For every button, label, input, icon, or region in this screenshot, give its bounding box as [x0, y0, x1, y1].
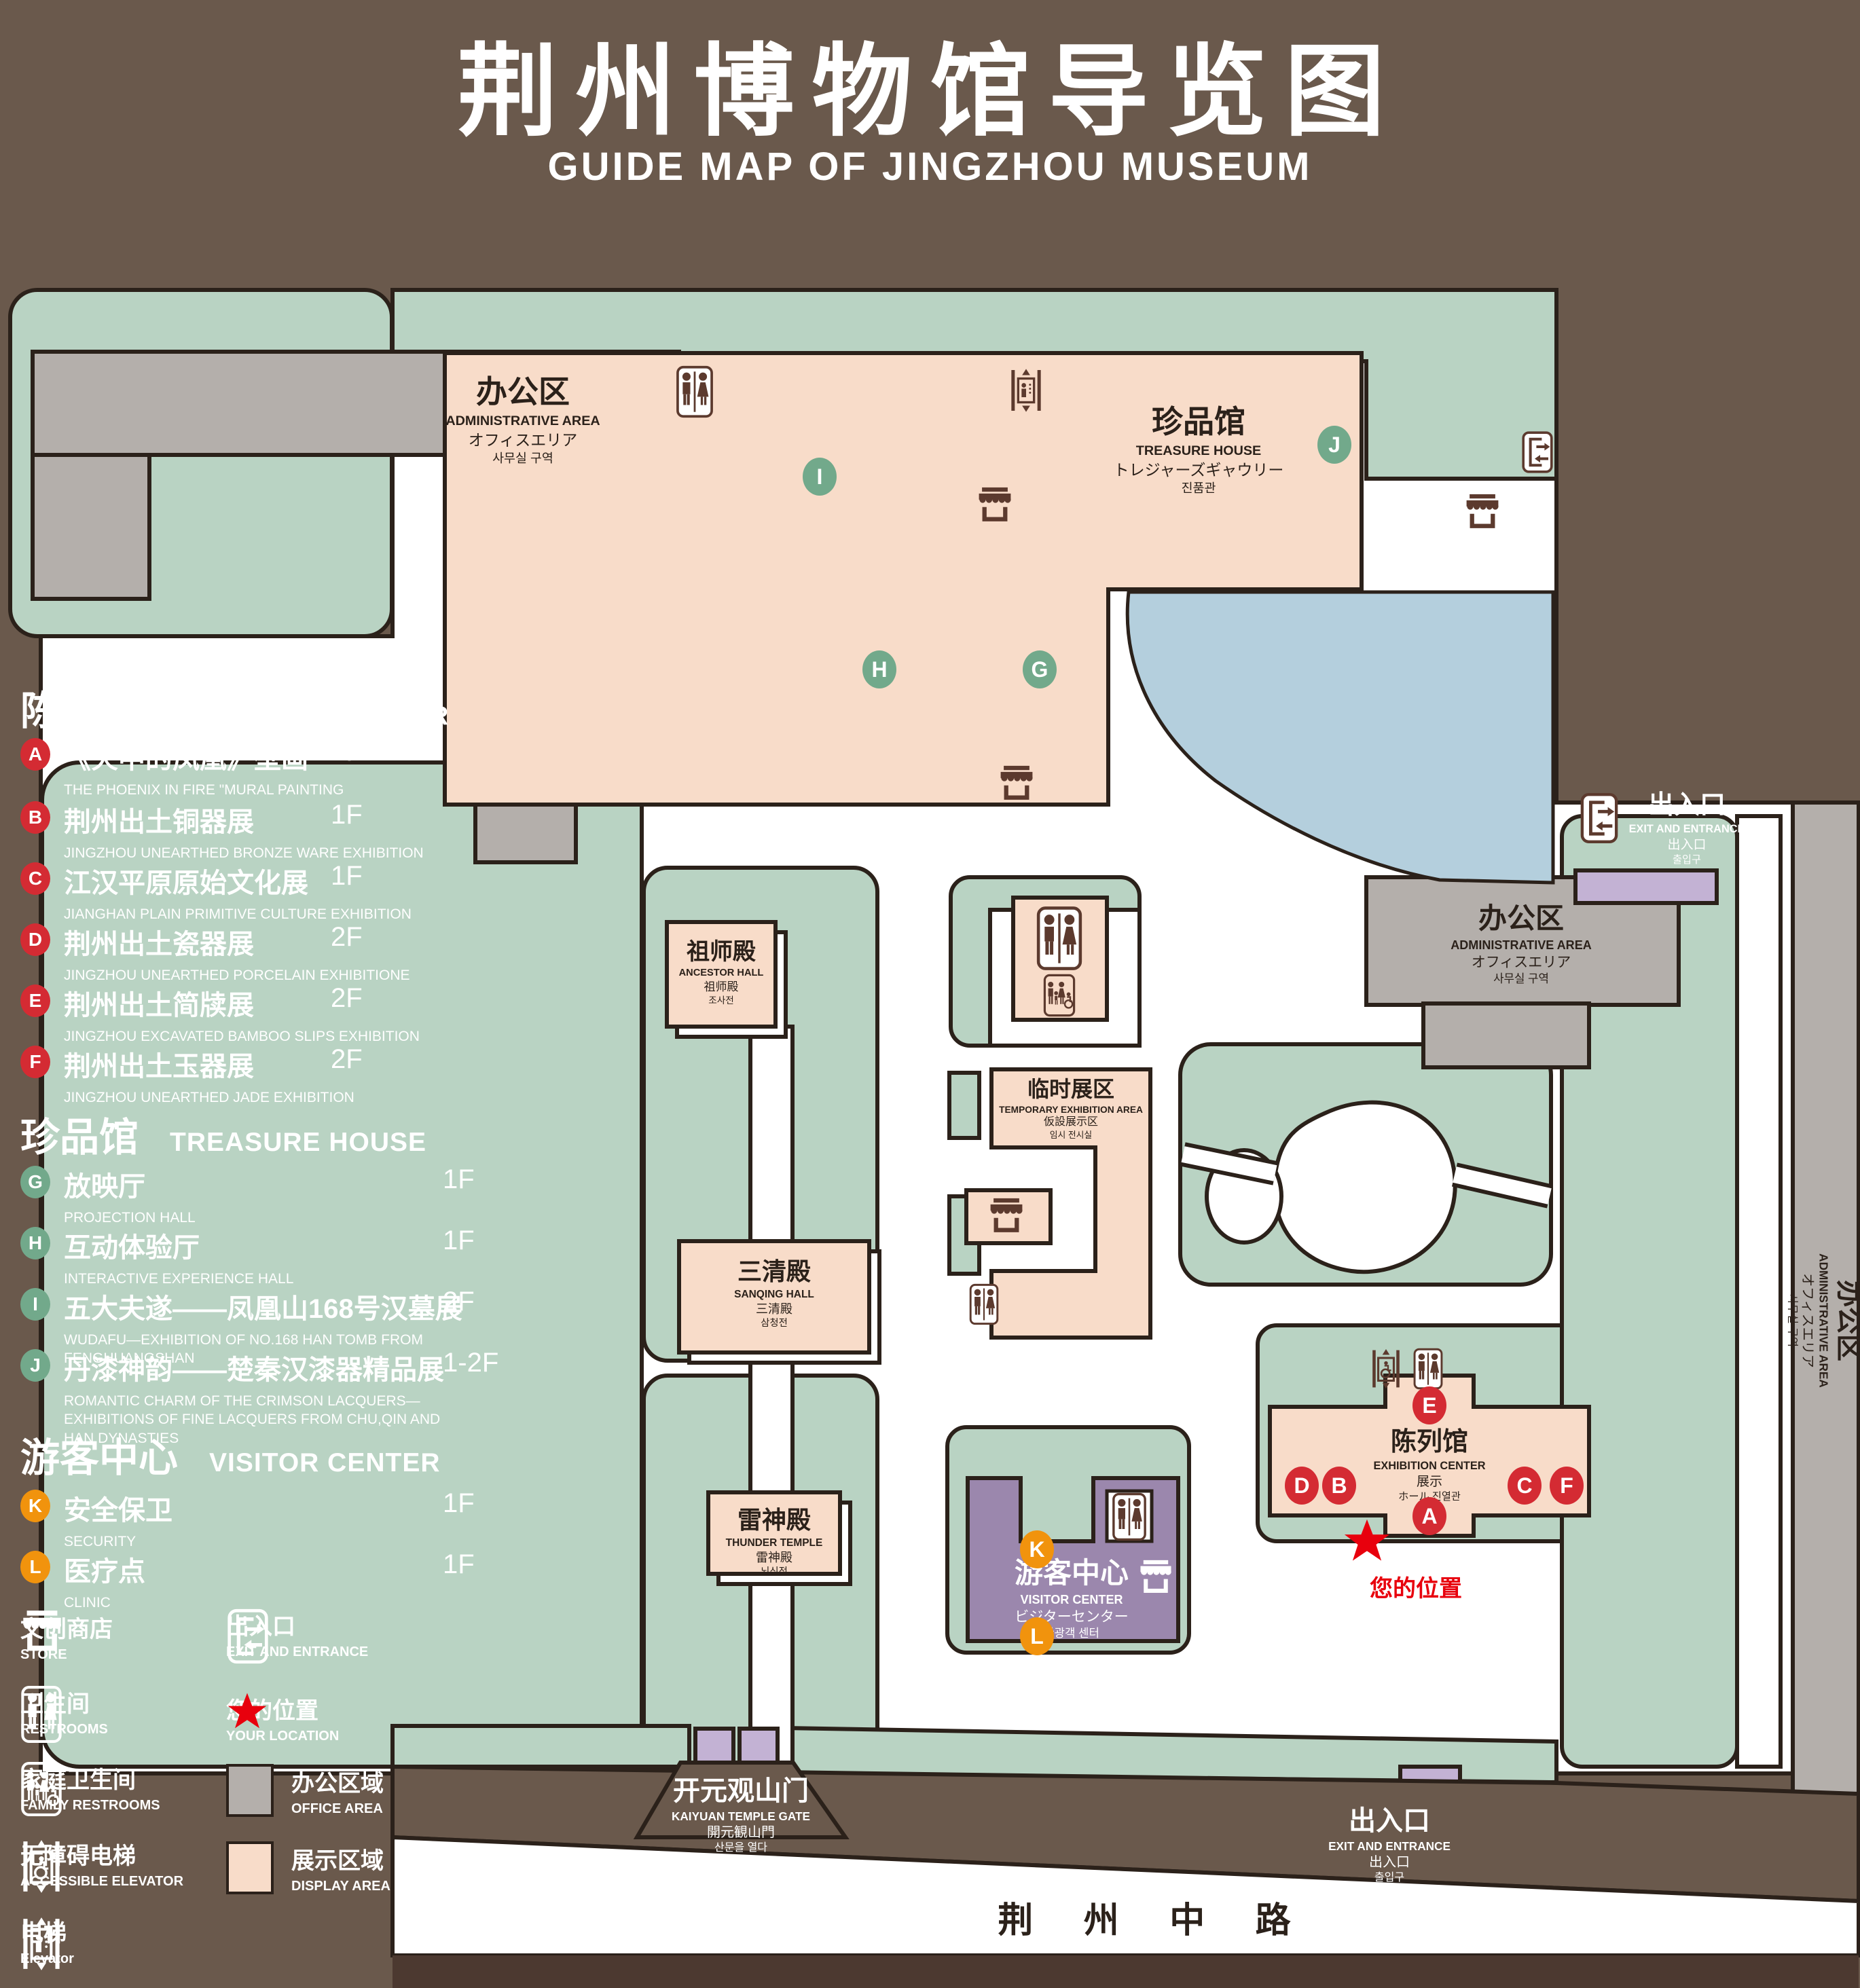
family-restroom-icon: [20, 1761, 62, 1817]
exit-icon: [226, 1608, 270, 1665]
label-admin-nw: 办公区ADMINISTRATIVE AREA オフィスエリア사무실 구역: [445, 372, 600, 466]
badge-k: K: [20, 1490, 50, 1522]
floor-label: 1F: [443, 1226, 475, 1256]
office-area-swatch: [226, 1764, 274, 1817]
floor-label: 1F: [331, 861, 363, 891]
map-badge-h: H: [862, 650, 896, 688]
map-badge-d: D: [1285, 1467, 1319, 1505]
label-kaiyuan-gate: 开元观山门KAIYUAN TEMPLE GATE 開元観山門산문을 열다: [672, 1773, 810, 1856]
badge-d: D: [20, 923, 50, 956]
map-badge-f: F: [1550, 1467, 1584, 1505]
badge-i: I: [20, 1288, 50, 1321]
floor-label: 1F: [443, 1488, 475, 1519]
legend-symbol-accessible-elevator: 无障碍电梯 ACCESSIBLE ELEVATOR: [20, 1837, 183, 1890]
restroom-icon: [970, 1285, 998, 1323]
label-exit-east: 出入口EXIT AND ENTRANCE 出入口출입구: [1629, 789, 1745, 867]
map-badge-e: E: [1412, 1386, 1446, 1424]
badge-g: G: [20, 1166, 50, 1198]
legend-symbol-store: 文创商店 STORE: [20, 1610, 113, 1663]
badge-l: L: [20, 1551, 50, 1583]
floor-label: 1F: [331, 800, 363, 830]
floor-label: 2F: [443, 1287, 475, 1317]
floor-label: 2F: [331, 1044, 363, 1075]
your-location-label: 您的位置: [1370, 1570, 1462, 1603]
map-badge-c: C: [1508, 1467, 1542, 1505]
legend-symbol-elevator: 电梯 Elevator: [20, 1915, 74, 1967]
legend-symbol-display-area: 展示区域 DISPLAY AREA: [226, 1841, 390, 1894]
legend-item-c: C 江汉平原原始文化展 JIANGHAN PLAIN PRIMITIVE CUL…: [20, 861, 523, 923]
legend-symbol-office-area: 办公区域 OFFICE AREA: [226, 1764, 384, 1817]
label-thunder-temple: 雷神殿THUNDER TEMPLE 雷神殿뇌신전: [726, 1505, 823, 1579]
label-admin-e: 办公区ADMINISTRATIVE AREA オフィスエリア사무실 구역: [1451, 900, 1592, 987]
badge-j: J: [20, 1349, 50, 1382]
label-treasure-house: 珍品馆TREASURE HOUSE トレジャーズギャウリー진품관: [1114, 402, 1284, 496]
location-star-icon: [226, 1692, 268, 1731]
exit-icon: [1523, 432, 1552, 472]
map-badge-b: B: [1322, 1467, 1356, 1505]
map-badge-g: G: [1023, 650, 1057, 688]
restroom-icon: [20, 1685, 62, 1744]
badge-f: F: [20, 1046, 50, 1078]
restroom-icon: [1038, 908, 1080, 968]
legend-symbol-family-restrooms: 家庭卫生间 FAMILY RESTROOMS: [20, 1761, 160, 1814]
badge-e: E: [20, 984, 50, 1017]
label-sanqing-hall: 三清殿SANQING HALL 三清殿삼청전: [734, 1256, 814, 1330]
legend-item-h: H 互动体验厅 INTERACTIVE EXPERIENCE HALL 1F: [20, 1226, 523, 1288]
legend-section-treasure-house: 珍品馆 TREASURE HOUSE: [20, 1105, 426, 1162]
badge-b: B: [20, 801, 50, 834]
guide-map-poster: 荆州博物馆导览图 GUIDE MAP OF JINGZHOU MUSEUM 陈列…: [0, 0, 1860, 1988]
floor-label: 2F: [331, 983, 363, 1014]
floor-label: 1-2F: [443, 1348, 498, 1378]
map-badge-l: L: [1020, 1617, 1054, 1655]
badge-h: H: [20, 1227, 50, 1259]
badge-a: A: [20, 738, 50, 771]
floor-label: 2F: [331, 922, 363, 953]
label-exhibition-center: 陈列馆EXHIBITION CENTER 展示ホール 진열관: [1373, 1426, 1485, 1504]
legend-item-d: D 荆州出土瓷器展 JINGZHOU UNEARTHED PORCELAIN E…: [20, 922, 523, 984]
legend-symbol-restrooms: 卫生间 RESTROOMS: [20, 1685, 108, 1737]
legend-item-l: L 医疗点 CLINIC 1F: [20, 1549, 523, 1612]
legend-item-b: B 荆州出土铜器展 JINGZHOU UNEARTHED BRONZE WARE…: [20, 800, 523, 862]
page-title: 荆州博物馆导览图: [0, 10, 1860, 155]
floor-label: 1F: [331, 737, 363, 767]
restroom-icon: [678, 367, 712, 416]
exit-icon: [1582, 794, 1616, 842]
floor-label: 1F: [443, 1164, 475, 1195]
map-badge-k: K: [1020, 1530, 1054, 1568]
label-temporary-exhibition: 临时展区TEMPORARY EXHIBITION AREA 仮設展示区임시 전시…: [999, 1075, 1143, 1141]
map-badge-a: A: [1412, 1497, 1446, 1535]
legend-section-exhibition-center: 陈列馆 EXHIBITION CENTER: [20, 679, 449, 736]
label-admin-strip: 办公区ADMINISTRATIVE AREA オフィスエリア사무실 구역: [1784, 1253, 1860, 1388]
road-label: 荆 州 中 路: [998, 1892, 1311, 1943]
map-badge-j: J: [1317, 426, 1351, 464]
badge-c: C: [20, 862, 50, 895]
label-exit-south: 出入口EXIT AND ENTRANCE 出入口출입구: [1328, 1803, 1451, 1885]
store-icon: [20, 1610, 64, 1653]
legend-symbol-your-location: 您的位置 YOUR LOCATION: [226, 1692, 339, 1744]
label-ancestor-hall: 祖师殿ANCESTOR HALL 祖师殿조사전: [679, 937, 764, 1007]
legend-item-f: F 荆州出土玉器展 JINGZHOU UNEARTHED JADE EXHIBI…: [20, 1044, 523, 1107]
restroom-icon: [1415, 1349, 1442, 1388]
elevator-icon: [20, 1915, 62, 1973]
page-subtitle: GUIDE MAP OF JINGZHOU MUSEUM: [0, 144, 1860, 189]
legend-section-visitor-center: 游客中心 VISITOR CENTER: [20, 1426, 441, 1483]
road-south-band: [393, 1955, 1859, 1988]
legend-item-a: A 《火中的凤凰》壁画 THE PHOENIX IN FIRE "MURAL P…: [20, 737, 523, 799]
display-area-swatch: [226, 1841, 274, 1894]
floor-label: 1F: [443, 1549, 475, 1580]
legend-item-g: G 放映厅 PROJECTION HALL 1F: [20, 1164, 523, 1227]
accessible-elevator-icon: [20, 1837, 62, 1896]
legend-item-e: E 荆州出土简牍展 JINGZHOU EXCAVATED BAMBOO SLIP…: [20, 983, 523, 1046]
legend-symbol-exit: 出入口 EXIT AND ENTRANCE: [226, 1608, 368, 1660]
restroom-icon: [1114, 1494, 1145, 1540]
legend-item-k: K 安全保卫 SECURITY 1F: [20, 1488, 523, 1551]
map-badge-i: I: [803, 458, 837, 496]
